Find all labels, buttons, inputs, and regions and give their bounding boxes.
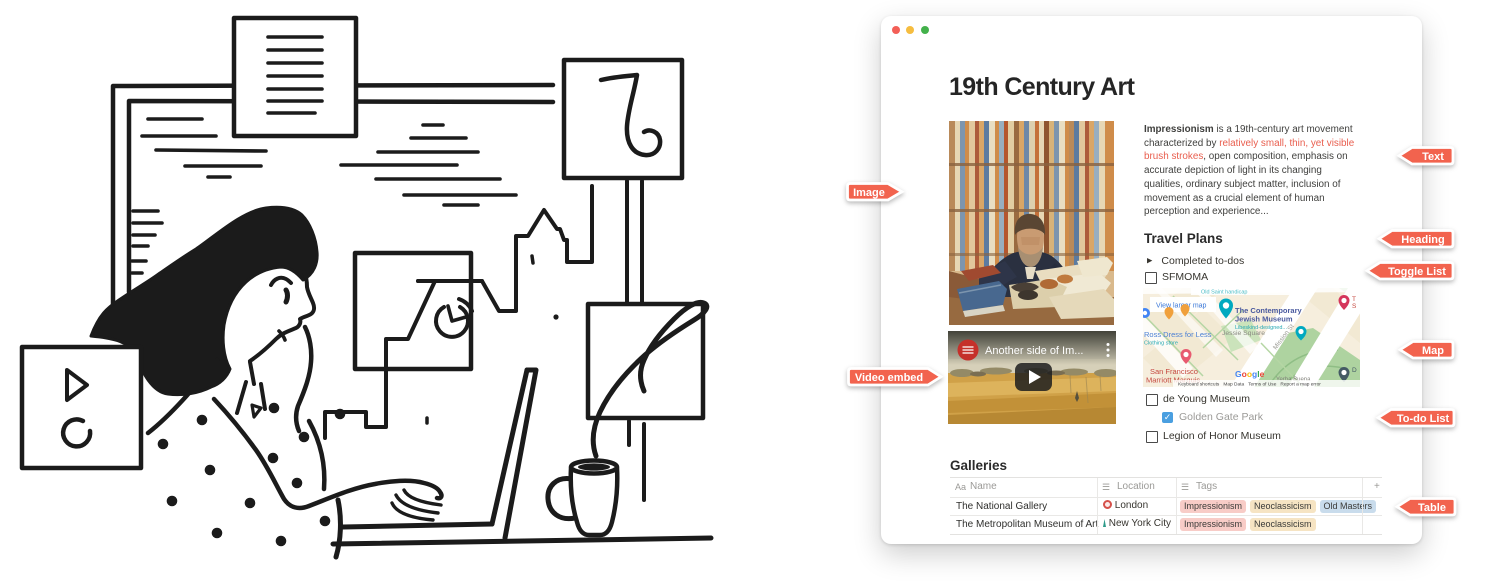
svg-text:Image: Image [853,187,885,199]
svg-text:Toggle List: Toggle List [1388,266,1446,278]
svg-text:Table: Table [1418,502,1446,514]
svg-text:Map: Map [1422,345,1444,357]
svg-text:T: T [1352,296,1356,303]
svg-text:S: S [1352,303,1357,310]
svg-text:Jessie Square: Jessie Square [1222,330,1265,337]
svg-text:To-do List: To-do List [1397,413,1450,425]
svg-text:Jewish Museum: Jewish Museum [1235,315,1293,324]
svg-text:Ross Dress for Less: Ross Dress for Less [1144,330,1212,339]
svg-text:Old Saint handicap: Old Saint handicap [1201,290,1247,296]
svg-text:Text: Text [1422,151,1444,163]
svg-text:Google: Google [1235,369,1265,379]
svg-text:D: D [1352,367,1357,374]
svg-text:Another side of Im...: Another side of Im... [985,345,1083,357]
svg-text:Clothing store: Clothing store [1144,341,1178,347]
svg-text:Keyboard shortcuts Map Data: Keyboard shortcuts Map Data Terms of Use… [1178,382,1321,388]
svg-text:Video embed: Video embed [855,372,923,384]
svg-text:Heading: Heading [1401,234,1444,246]
